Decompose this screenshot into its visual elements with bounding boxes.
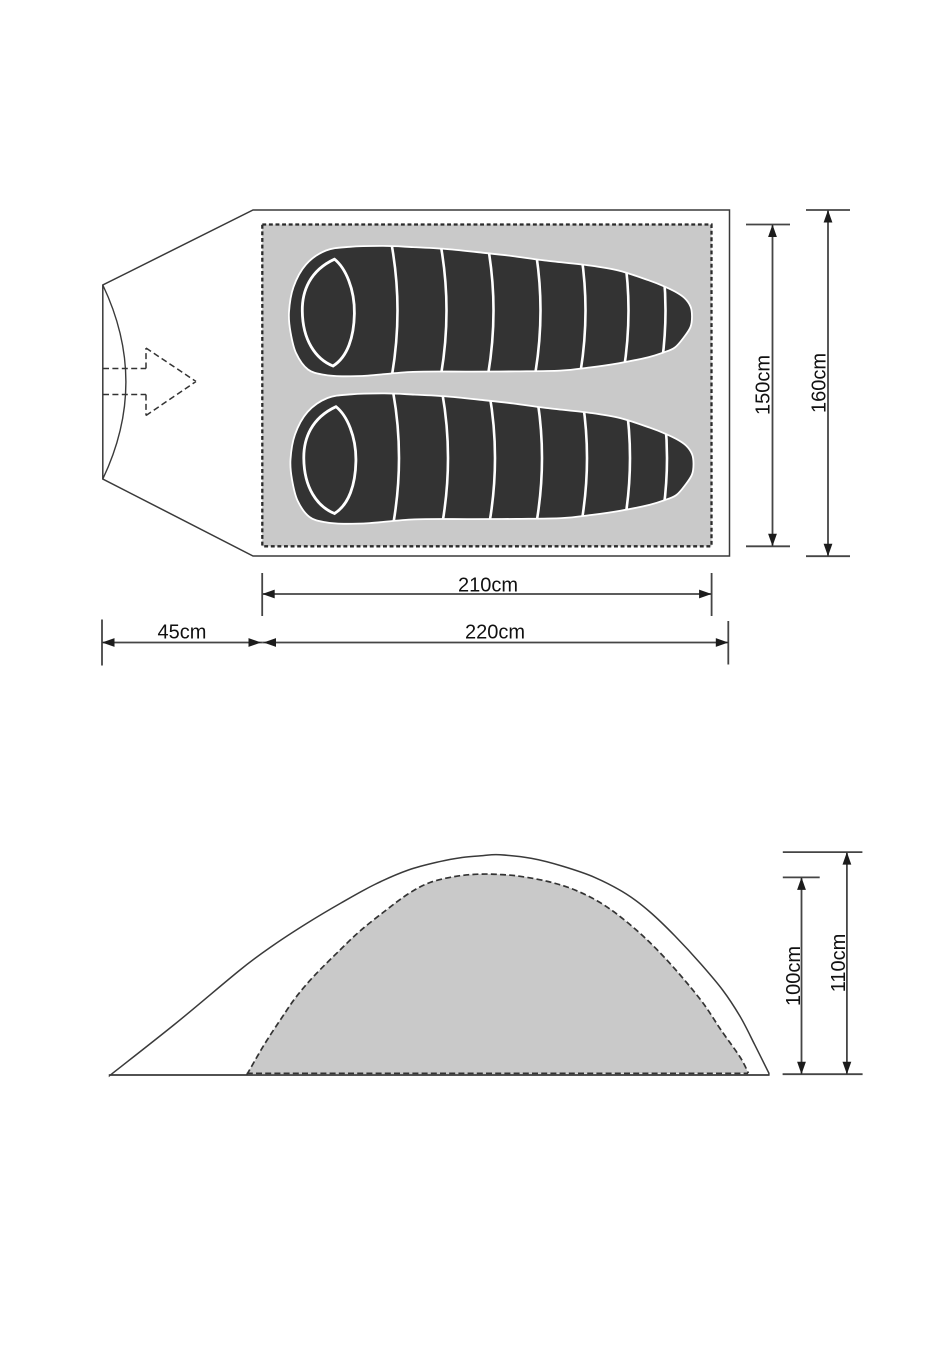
svg-text:45cm: 45cm	[158, 622, 207, 644]
svg-text:220cm: 220cm	[465, 622, 525, 644]
svg-text:210cm: 210cm	[458, 575, 518, 597]
svg-text:110cm: 110cm	[828, 934, 850, 993]
svg-text:150cm: 150cm	[753, 355, 775, 415]
svg-text:160cm: 160cm	[809, 353, 831, 413]
svg-text:100cm: 100cm	[783, 946, 805, 1006]
